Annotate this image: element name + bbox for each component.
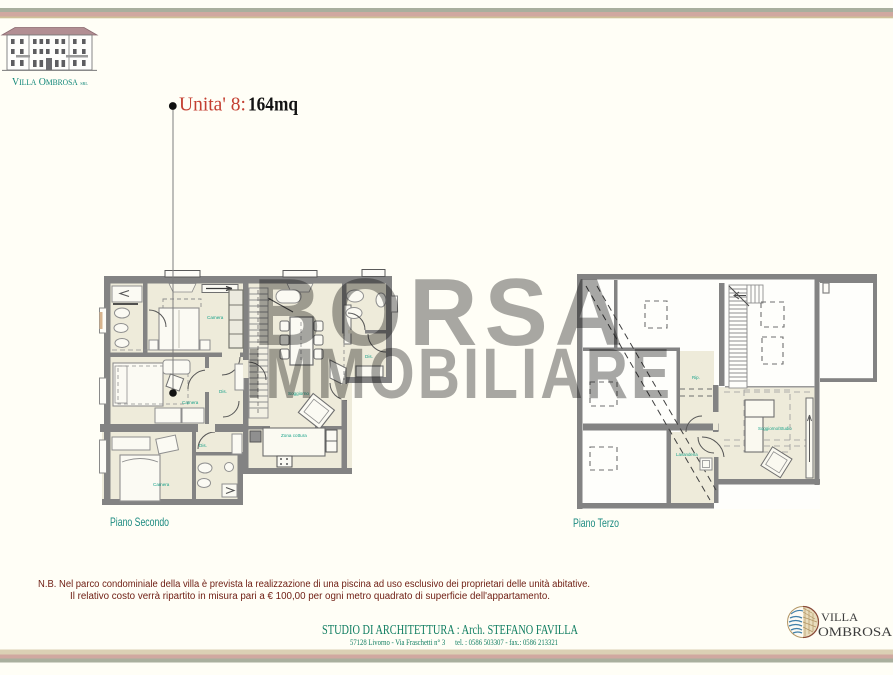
svg-text:Dis.: Dis. (219, 389, 227, 394)
svg-text:Piano Terzo: Piano Terzo (573, 516, 619, 530)
svg-text:Camera: Camera (182, 400, 199, 405)
svg-text:Dis.: Dis. (199, 443, 207, 448)
svg-text:Camera: Camera (207, 315, 224, 320)
svg-text:57128 Livorno - Via Fraschetti: 57128 Livorno - Via Fraschetti n° 3 tel.… (350, 638, 558, 647)
svg-text:OMBROSA: OMBROSA (818, 624, 893, 639)
svg-text:Camera: Camera (153, 482, 170, 487)
svg-text:Unita' 8: 164mq: Unita' 8: 164mq (179, 95, 298, 116)
svg-text:VILLA: VILLA (821, 612, 859, 624)
svg-text:Piano Secondo: Piano Secondo (110, 515, 169, 529)
svg-text:Il relativo costo verrà ripart: Il relativo costo verrà ripartito in mis… (70, 591, 550, 602)
svg-text:Rip.: Rip. (692, 375, 700, 380)
svg-text:VILLA OMBROSA SRL: VILLA OMBROSA SRL (12, 77, 88, 88)
svg-text:Lavanderia: Lavanderia (676, 452, 698, 457)
svg-text:N.B. Nel parco condominiale de: N.B. Nel parco condominiale della villa … (38, 579, 590, 590)
svg-text:STUDIO DI ARCHITETTURA : Arch.: STUDIO DI ARCHITETTURA : Arch. STEFANO F… (322, 622, 578, 637)
svg-text:Soggiorno/Studio: Soggiorno/Studio (758, 426, 792, 431)
svg-text:IMMOBILIARE: IMMOBILIARE (246, 335, 673, 414)
svg-text:Zona cottura: Zona cottura (281, 433, 307, 438)
